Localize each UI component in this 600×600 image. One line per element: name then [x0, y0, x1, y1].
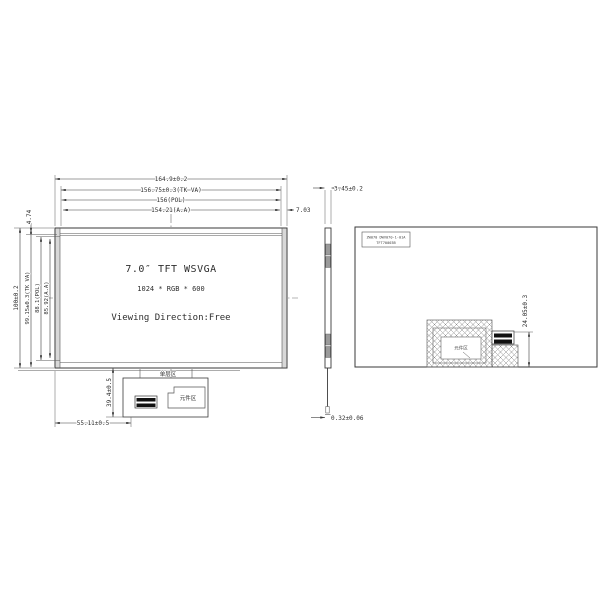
back-view: ZW070 DWV070-1-01A TFT70003B 元件区 24.05±0…: [355, 227, 597, 367]
dim-height-aa: 85.92(A.A): [44, 281, 50, 314]
dim-fpc-offset: 55.11±0.5: [77, 420, 110, 427]
dim-thickness: 3.45±0.2: [334, 186, 363, 193]
side-component-block: [326, 334, 331, 345]
dim-height-outline: 100±0.2: [13, 285, 20, 311]
dim-width-pol: 156(POL): [157, 197, 186, 204]
dim-height-tk-va: 99.15±0.3(TK VA): [25, 272, 31, 325]
fpc-connector-bar: [137, 398, 156, 402]
dim-height-pol: 88.1(POL): [35, 283, 41, 313]
fpc-connector-bar: [137, 404, 156, 408]
drawing-canvas: 7.0″ TFT WSVGA 1024 * RGB * 600 Viewing …: [0, 0, 600, 600]
dim-va-top-offset: 4.74: [26, 209, 33, 224]
side-component-block: [326, 347, 331, 358]
back-connector-bar: [494, 340, 512, 344]
dim-width-outline: 164.9±0.2: [155, 176, 188, 183]
component-zone-label: 元件区: [180, 394, 197, 402]
dim-width-tk-va: 156.75±0.3(TK VA): [140, 187, 201, 194]
panel-bezel-right: [282, 229, 286, 368]
viewing-direction-label: Viewing Direction:Free: [111, 313, 230, 323]
technical-drawing-sheet: 7.0″ TFT WSVGA 1024 * RGB * 600 Viewing …: [0, 0, 600, 600]
dim-border-right: 7.03: [296, 207, 311, 214]
dim-width-aa: 154.21(A.A): [151, 207, 191, 214]
dim-fpc-fold-height: 24.05±0.3: [522, 294, 529, 327]
back-connector-bar: [494, 334, 512, 338]
panel-bezel-left: [56, 229, 60, 368]
part-number-line1: ZW070 DWV070-1-01A: [367, 236, 407, 240]
dim-fpc-length: 39.4±0.5: [106, 378, 113, 407]
panel-resolution: 1024 * RGB * 600: [137, 285, 204, 293]
side-fpc-end: [326, 407, 329, 414]
fpc-front: 单层区 元件区: [123, 369, 208, 417]
single-layer-zone-label: 单层区: [160, 370, 177, 378]
part-number-line2: TFT70003B: [376, 241, 395, 245]
panel-title: 7.0″ TFT WSVGA: [125, 264, 216, 275]
front-view: 7.0″ TFT WSVGA 1024 * RGB * 600 Viewing …: [13, 175, 311, 427]
side-component-block: [326, 244, 331, 255]
side-component-block: [326, 257, 331, 268]
panel-outline: [55, 228, 287, 368]
back-component-zone-label: 元件区: [454, 345, 468, 352]
dim-fpc-thickness: 0.32±0.06: [331, 415, 364, 422]
fpc-fold-hatch-extension: [492, 345, 518, 367]
